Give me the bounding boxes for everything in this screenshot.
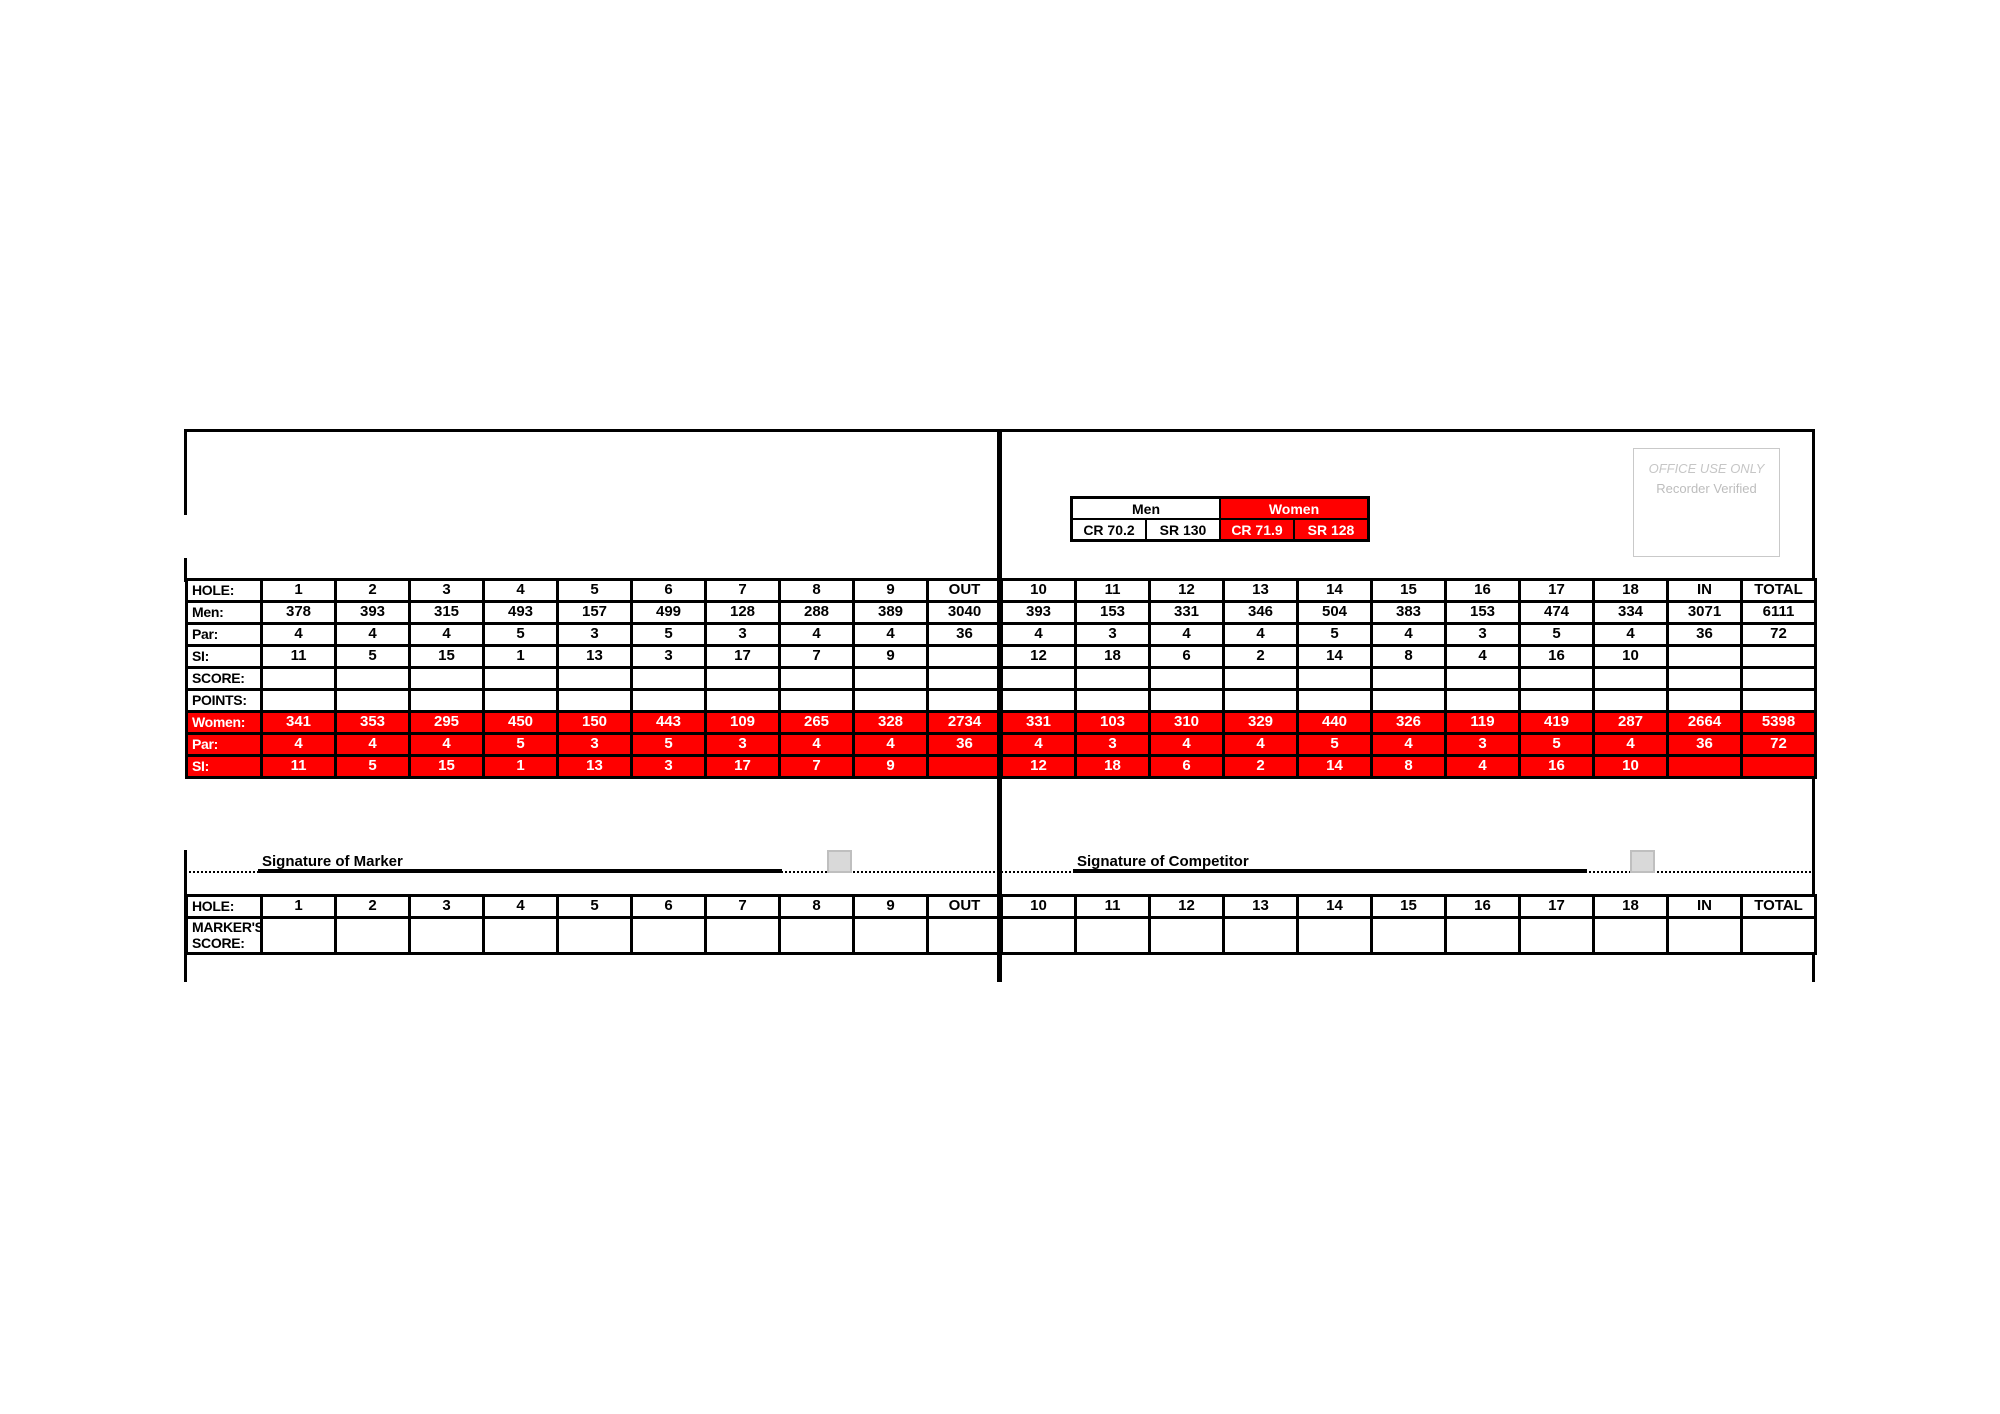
score-cell [632,668,706,690]
score-cell: 157 [558,602,632,624]
score-cell: 3 [1446,734,1520,756]
score-cell: 331 [1002,712,1076,734]
score-cell: 443 [632,712,706,734]
score-cell: 5 [484,624,558,646]
score-cell [1742,646,1816,668]
score-cell: 11 [1076,896,1150,918]
score-cell [632,690,706,712]
score-cell [1002,668,1076,690]
score-cell: 3 [706,624,780,646]
score-cell: 12 [1002,756,1076,778]
score-cell [1224,690,1298,712]
score-cell: 119 [1446,712,1520,734]
score-cell [1372,690,1446,712]
score-cell: 8 [1372,756,1446,778]
score-cell [928,668,1002,690]
score-cell: 310 [1150,712,1224,734]
score-cell: 3 [632,646,706,668]
score-cell: 328 [854,712,928,734]
score-cell: 4 [1224,734,1298,756]
score-cell: 36 [1668,624,1742,646]
score-cell: 18 [1594,896,1668,918]
marker-signature-label: Signature of Marker [262,853,403,870]
score-cell: 109 [706,712,780,734]
score-cell: 383 [1372,602,1446,624]
score-cell: 36 [928,624,1002,646]
score-cell: 14 [1298,756,1372,778]
women-course-rating: CR 71.9 [1220,519,1294,541]
score-cell: 5 [1520,734,1594,756]
office-use-title: OFFICE USE ONLY [1634,459,1779,479]
score-cell [1594,668,1668,690]
score-cell [1742,668,1816,690]
score-cell: 4 [484,896,558,918]
score-cell: 3 [1076,734,1150,756]
score-cell [484,690,558,712]
score-cell [558,918,632,954]
score-cell [1076,918,1150,954]
score-cell: 18 [1076,756,1150,778]
score-cell: 504 [1298,602,1372,624]
office-use-box: OFFICE USE ONLY Recorder Verified [1633,448,1780,557]
score-cell: 499 [632,602,706,624]
score-cell: 17 [1520,896,1594,918]
score-cell: 3 [410,580,484,602]
score-cell: 14 [1298,580,1372,602]
score-cell: 3 [1076,624,1150,646]
score-cell: 493 [484,602,558,624]
score-cell: 1 [484,756,558,778]
score-cell: 5 [1520,624,1594,646]
men-rating-header: Men [1072,498,1221,520]
score-cell: 295 [410,712,484,734]
score-cell: 450 [484,712,558,734]
score-cell [1520,668,1594,690]
score-cell: 341 [262,712,336,734]
score-cell: 4 [780,734,854,756]
score-cell: 103 [1076,712,1150,734]
score-cell [1520,918,1594,954]
score-cell: 6 [632,896,706,918]
score-cell: 329 [1224,712,1298,734]
scorecard-page: Men Women CR 70.2 SR 130 CR 71.9 SR 128 … [0,0,2000,1414]
score-cell: 15 [410,756,484,778]
score-cell: 18 [1594,580,1668,602]
score-cell: 10 [1002,896,1076,918]
score-cell [262,690,336,712]
score-cell: 5 [558,580,632,602]
score-cell: 1 [262,896,336,918]
score-cell: 4 [262,734,336,756]
score-cell: 36 [1668,734,1742,756]
score-cell: 16 [1446,896,1520,918]
score-cell [780,918,854,954]
score-cell: 3071 [1668,602,1742,624]
score-cell: 12 [1150,896,1224,918]
row-label: SI: [187,756,262,778]
row-label: SI: [187,646,262,668]
score-cell: 3 [632,756,706,778]
score-cell: 346 [1224,602,1298,624]
score-cell: 13 [1224,896,1298,918]
score-cell: 4 [262,624,336,646]
row-label: Women: [187,712,262,734]
score-cell [410,668,484,690]
score-cell: 18 [1076,646,1150,668]
score-cell [1520,690,1594,712]
score-cell [1372,918,1446,954]
score-cell: 419 [1520,712,1594,734]
score-cell: 36 [928,734,1002,756]
score-cell: 17 [706,646,780,668]
score-cell [336,918,410,954]
score-cell [1372,668,1446,690]
score-cell: 17 [1520,580,1594,602]
score-cell: 6 [1150,756,1224,778]
score-cell [1076,668,1150,690]
score-cell: 7 [780,646,854,668]
row-label: SCORE: [187,668,262,690]
score-cell: 9 [854,646,928,668]
score-cell: 4 [854,624,928,646]
score-cell: 128 [706,602,780,624]
score-cell [1224,668,1298,690]
score-cell [854,690,928,712]
score-cell: 16 [1446,580,1520,602]
score-cell: 8 [780,580,854,602]
score-cell: 2 [336,896,410,918]
score-cell [706,690,780,712]
score-cell: 10 [1002,580,1076,602]
score-cell: 12 [1150,580,1224,602]
score-cell [706,668,780,690]
score-cell [410,690,484,712]
score-cell [780,668,854,690]
score-cell [1668,668,1742,690]
score-cell: 4 [1372,734,1446,756]
score-cell [1594,690,1668,712]
marker-signature-line [258,869,782,873]
score-cell: 6111 [1742,602,1816,624]
row-label: MARKER'S SCORE: [187,918,262,954]
score-cell: 393 [1002,602,1076,624]
score-cell [336,690,410,712]
score-cell: 2 [1224,646,1298,668]
row-label: Par: [187,624,262,646]
score-cell [706,918,780,954]
score-cell: 14 [1298,646,1372,668]
score-cell: 5398 [1742,712,1816,734]
score-cell: 13 [1224,580,1298,602]
score-cell: 72 [1742,624,1816,646]
score-cell: 6 [632,580,706,602]
score-cell: 4 [1002,624,1076,646]
score-cell: 5 [1298,734,1372,756]
score-cell: 4 [1594,624,1668,646]
score-cell: 4 [1150,734,1224,756]
score-cell: 4 [336,624,410,646]
men-slope-rating: SR 130 [1146,519,1220,541]
score-cell: 8 [1372,646,1446,668]
score-cell: 15 [1372,580,1446,602]
score-cell: TOTAL [1742,580,1816,602]
competitor-signature-line [1073,869,1587,873]
recorder-verified-label: Recorder Verified [1634,479,1779,499]
marker-signature-checkbox [827,850,852,873]
score-cell: 326 [1372,712,1446,734]
score-cell: 4 [410,624,484,646]
score-cell [1150,918,1224,954]
score-cell: 11 [262,756,336,778]
score-cell [632,918,706,954]
score-cell: 2664 [1668,712,1742,734]
score-cell: 2734 [928,712,1002,734]
score-cell [558,690,632,712]
score-cell: 1 [262,580,336,602]
score-cell [854,918,928,954]
score-cell: 334 [1594,602,1668,624]
row-label: HOLE: [187,580,262,602]
course-rating-table: Men Women CR 70.2 SR 130 CR 71.9 SR 128 [1070,496,1370,542]
score-cell: 1 [484,646,558,668]
competitor-signature-checkbox [1630,850,1655,873]
score-cell [1076,690,1150,712]
score-cell: 4 [1446,646,1520,668]
score-cell: 14 [1298,896,1372,918]
score-cell: 3 [1446,624,1520,646]
score-cell: 5 [336,646,410,668]
score-cell: 11 [1076,580,1150,602]
score-cell: 4 [336,734,410,756]
men-course-rating: CR 70.2 [1072,519,1147,541]
score-cell: 15 [1372,896,1446,918]
score-cell: 7 [706,580,780,602]
row-label: Par: [187,734,262,756]
score-cell: 353 [336,712,410,734]
score-cell [1298,690,1372,712]
page-border-left-upper [184,429,187,515]
score-cell: 4 [1372,624,1446,646]
score-cell [1668,690,1742,712]
score-cell [1742,756,1816,778]
score-cell: IN [1668,896,1742,918]
score-cell: 10 [1594,756,1668,778]
score-cell: 12 [1002,646,1076,668]
score-cell: 393 [336,602,410,624]
score-cell [1446,668,1520,690]
score-cell: 4 [1594,734,1668,756]
score-cell [1668,756,1742,778]
score-cell [1742,690,1816,712]
score-cell: 5 [558,896,632,918]
score-cell: 150 [558,712,632,734]
score-cell [780,690,854,712]
score-cell: OUT [928,580,1002,602]
score-cell [410,918,484,954]
score-cell: OUT [928,896,1002,918]
score-cell: 3 [706,734,780,756]
row-label: Men: [187,602,262,624]
score-cell: 4 [410,734,484,756]
score-cell: 7 [780,756,854,778]
score-cell [484,668,558,690]
score-cell: 3 [558,734,632,756]
score-cell [928,646,1002,668]
score-cell [1668,646,1742,668]
score-cell: 9 [854,580,928,602]
score-cell [336,668,410,690]
score-cell: 6 [1150,646,1224,668]
score-cell: 4 [484,580,558,602]
score-cell: TOTAL [1742,896,1816,918]
score-cell [484,918,558,954]
score-cell: 5 [1298,624,1372,646]
score-cell: 16 [1520,646,1594,668]
score-cell: 4 [1446,756,1520,778]
score-cell [1446,918,1520,954]
score-cell: 15 [410,646,484,668]
score-cell [1002,690,1076,712]
score-cell: 9 [854,756,928,778]
score-cell: 2 [336,580,410,602]
score-cell: 287 [1594,712,1668,734]
center-divider [997,429,1002,982]
score-cell: 17 [706,756,780,778]
score-cell [1002,918,1076,954]
women-slope-rating: SR 128 [1294,519,1369,541]
score-cell [1150,690,1224,712]
score-cell: 265 [780,712,854,734]
score-cell: 5 [632,624,706,646]
score-cell [928,756,1002,778]
score-cell: 4 [854,734,928,756]
row-label: HOLE: [187,896,262,918]
score-cell: 3 [410,896,484,918]
score-cell: IN [1668,580,1742,602]
score-cell: 11 [262,646,336,668]
score-cell: 474 [1520,602,1594,624]
score-cell: 440 [1298,712,1372,734]
score-cell: 331 [1150,602,1224,624]
score-cell: 8 [780,896,854,918]
score-cell [928,918,1002,954]
score-cell: 5 [484,734,558,756]
score-cell: 13 [558,756,632,778]
score-cell [262,918,336,954]
competitor-signature-label: Signature of Competitor [1077,853,1249,870]
score-cell: 4 [1002,734,1076,756]
score-cell [1668,918,1742,954]
score-cell: 72 [1742,734,1816,756]
score-cell: 4 [1224,624,1298,646]
score-cell [1298,668,1372,690]
score-cell: 4 [780,624,854,646]
score-cell: 9 [854,896,928,918]
women-rating-header: Women [1220,498,1369,520]
score-cell [1150,668,1224,690]
score-cell [1446,690,1520,712]
score-cell: 315 [410,602,484,624]
score-cell [1594,918,1668,954]
score-cell: 153 [1446,602,1520,624]
score-cell: 288 [780,602,854,624]
score-cell: 4 [1150,624,1224,646]
score-cell: 378 [262,602,336,624]
score-cell: 153 [1076,602,1150,624]
score-cell [1298,918,1372,954]
score-cell: 5 [632,734,706,756]
score-cell: 3040 [928,602,1002,624]
score-cell [928,690,1002,712]
score-cell [854,668,928,690]
score-cell: 389 [854,602,928,624]
score-cell: 10 [1594,646,1668,668]
score-cell [558,668,632,690]
score-cell: 2 [1224,756,1298,778]
score-cell: 16 [1520,756,1594,778]
score-cell [1742,918,1816,954]
score-cell: 7 [706,896,780,918]
row-label: POINTS: [187,690,262,712]
score-cell: 3 [558,624,632,646]
score-cell: 13 [558,646,632,668]
score-cell [262,668,336,690]
score-cell [1224,918,1298,954]
score-cell: 5 [336,756,410,778]
